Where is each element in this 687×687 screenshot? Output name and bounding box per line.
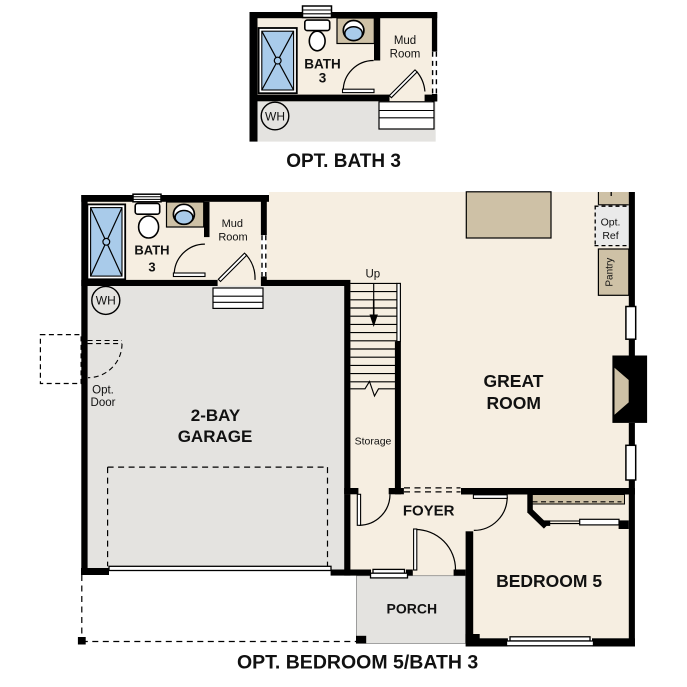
svg-text:Ref: Ref <box>602 230 618 242</box>
svg-text:Mud: Mud <box>394 35 416 47</box>
svg-text:Door: Door <box>91 397 116 409</box>
svg-text:Room: Room <box>390 49 421 61</box>
svg-text:2-BAY: 2-BAY <box>191 406 241 425</box>
svg-text:OPT. BEDROOM 5/BATH 3: OPT. BEDROOM 5/BATH 3 <box>237 652 478 674</box>
svg-text:WH: WH <box>265 109 285 123</box>
svg-text:FOYER: FOYER <box>403 502 455 519</box>
svg-text:BATH: BATH <box>134 243 169 258</box>
svg-text:BATH: BATH <box>304 57 341 72</box>
svg-text:3: 3 <box>148 260 155 275</box>
svg-text:3: 3 <box>319 71 327 86</box>
svg-text:ROOM: ROOM <box>486 393 540 413</box>
svg-text:Up: Up <box>365 269 380 281</box>
svg-text:Opt.: Opt. <box>92 385 114 397</box>
svg-text:Room: Room <box>218 232 247 244</box>
svg-text:Opt.: Opt. <box>601 217 621 229</box>
svg-text:GARAGE: GARAGE <box>178 427 253 446</box>
svg-text:GREAT: GREAT <box>484 371 544 391</box>
svg-text:Storage: Storage <box>355 436 392 448</box>
svg-text:Pantry: Pantry <box>605 258 616 287</box>
svg-text:WH: WH <box>96 294 116 308</box>
svg-text:BEDROOM 5: BEDROOM 5 <box>496 571 602 591</box>
svg-text:OPT. BATH 3: OPT. BATH 3 <box>286 151 401 172</box>
svg-text:PORCH: PORCH <box>387 601 438 617</box>
svg-text:Mud: Mud <box>222 218 243 230</box>
